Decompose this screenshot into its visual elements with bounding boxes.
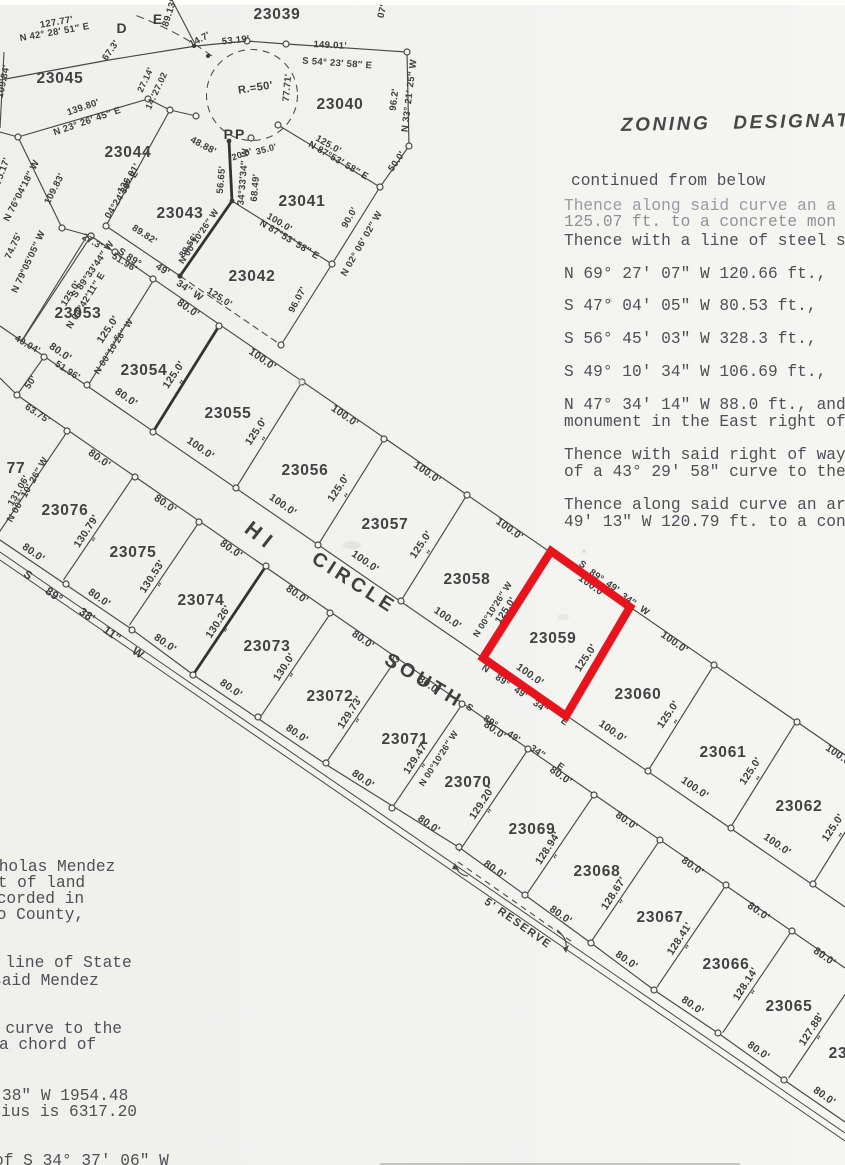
- svg-text:23062: 23062: [775, 798, 822, 815]
- svg-text:PP: PP: [224, 126, 247, 142]
- svg-text:23073: 23073: [243, 638, 290, 655]
- svg-text:N 47° 34' 14" W 88.0 ft., and: N 47° 34' 14" W 88.0 ft., and: [564, 396, 845, 414]
- svg-text:monument in the East right of: monument in the East right of: [564, 413, 845, 431]
- svg-text:23045: 23045: [36, 70, 83, 87]
- svg-text:23061: 23061: [699, 744, 746, 761]
- svg-text:23054: 23054: [120, 362, 167, 379]
- svg-text:23060: 23060: [614, 686, 661, 703]
- svg-text:S 56° 45' 03" W 328.3 ft.,: S 56° 45' 03" W 328.3 ft.,: [564, 330, 817, 348]
- svg-text:23043: 23043: [156, 205, 203, 222]
- svg-text:23056: 23056: [281, 462, 328, 479]
- svg-text:23074: 23074: [177, 592, 224, 609]
- svg-text:149.01': 149.01': [313, 39, 347, 52]
- svg-text:continued from below: continued from below: [571, 172, 766, 190]
- svg-text:23075: 23075: [109, 544, 156, 561]
- svg-text:23072: 23072: [306, 688, 353, 705]
- svg-text:23: 23: [829, 1045, 845, 1062]
- svg-text:23042: 23042: [228, 268, 275, 285]
- svg-text:23059: 23059: [529, 630, 576, 647]
- svg-text:23041: 23041: [278, 193, 325, 210]
- svg-text:23076: 23076: [41, 502, 88, 519]
- svg-text:said Mendez: said Mendez: [0, 972, 99, 990]
- svg-text:Thence along said curve an ar: Thence along said curve an ar: [564, 496, 845, 514]
- svg-text:ius is 6317.20: ius is 6317.20: [1, 1103, 137, 1121]
- svg-text:23040: 23040: [316, 96, 363, 113]
- svg-text:of a 43° 29' 58" curve to the: of a 43° 29' 58" curve to the: [564, 463, 845, 481]
- svg-text:125.07 ft. to a concrete mon: 125.07 ft. to a concrete mon: [564, 213, 836, 231]
- svg-text:23068: 23068: [573, 863, 620, 880]
- svg-text:23057: 23057: [361, 516, 408, 533]
- svg-text:23055: 23055: [204, 405, 251, 422]
- svg-text:a chord of: a chord of: [0, 1036, 96, 1054]
- svg-text:23044: 23044: [104, 144, 151, 161]
- svg-text:23065: 23065: [765, 998, 812, 1015]
- svg-text:Thence with a line of steel s: Thence with a line of steel s: [564, 232, 845, 250]
- svg-text:49' 13" W 120.79 ft. to a con: 49' 13" W 120.79 ft. to a con: [564, 513, 845, 531]
- svg-text:23039: 23039: [253, 6, 300, 23]
- svg-text:23067: 23067: [636, 909, 683, 926]
- svg-text:D: D: [116, 20, 127, 36]
- svg-text:of S 34° 37' 06" W: of S 34° 37' 06" W: [0, 1152, 169, 1165]
- svg-text:Thence with said right of way: Thence with said right of way: [564, 446, 845, 464]
- svg-text:23058: 23058: [443, 571, 490, 588]
- svg-text:S 49° 10' 34" W 106.69 ft.,: S 49° 10' 34" W 106.69 ft.,: [564, 363, 826, 381]
- svg-text:no County,: no County,: [0, 906, 84, 924]
- svg-text:S 47° 04' 05" W 80.53 ft.,: S 47° 04' 05" W 80.53 ft.,: [564, 297, 817, 315]
- svg-text:23066: 23066: [702, 956, 749, 973]
- svg-text:N 69° 27' 07" W 120.66 ft.,: N 69° 27' 07" W 120.66 ft.,: [564, 265, 826, 283]
- svg-text:e line of State: e line of State: [0, 954, 132, 972]
